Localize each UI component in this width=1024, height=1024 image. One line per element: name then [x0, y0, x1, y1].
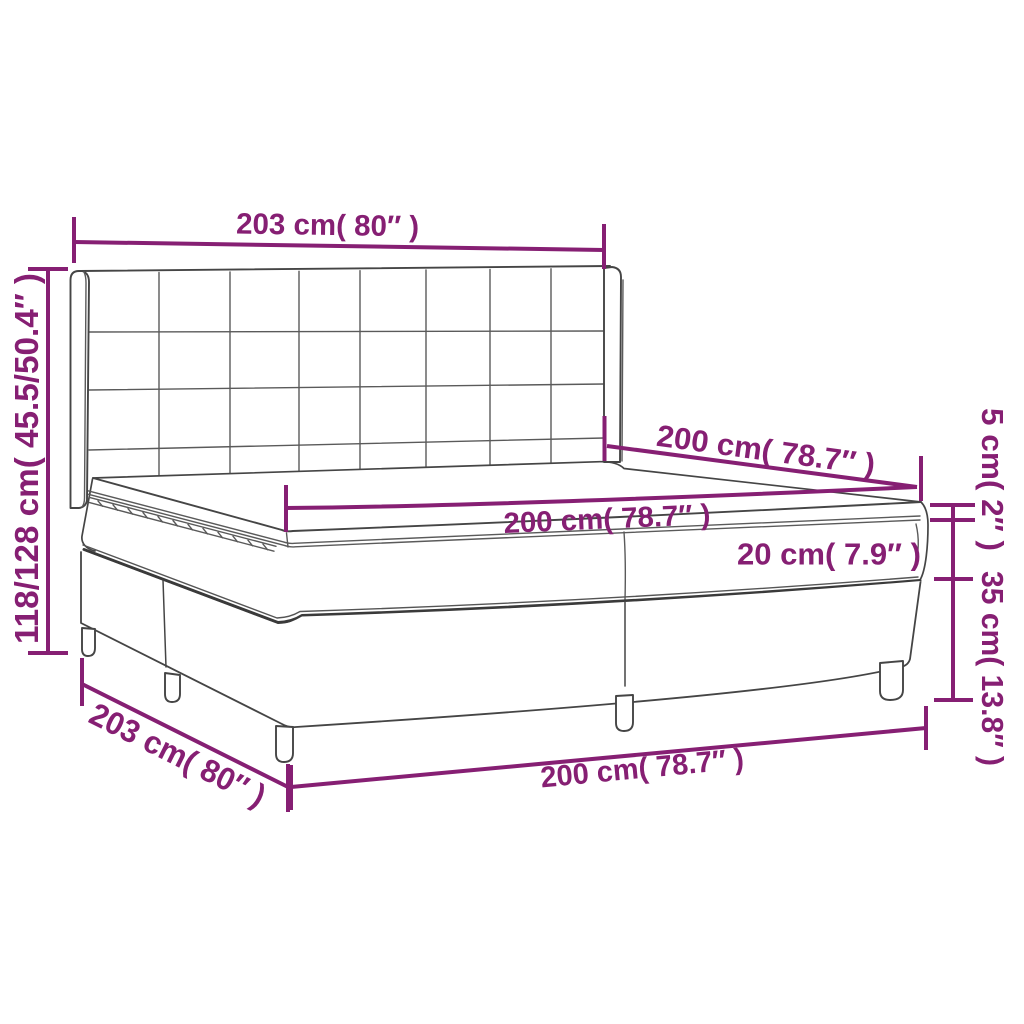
svg-text:118/128 cm( 45.5/50.4″ ): 118/128 cm( 45.5/50.4″ ): [8, 273, 45, 644]
svg-text:5 cm( 2″ ): 5 cm( 2″ ): [975, 408, 1010, 551]
svg-text:203 cm( 80″ ): 203 cm( 80″ ): [236, 208, 419, 244]
svg-text:20 cm( 7.9″ ): 20 cm( 7.9″ ): [737, 537, 921, 572]
svg-text:35 cm( 13.8″ ): 35 cm( 13.8″ ): [975, 571, 1009, 766]
